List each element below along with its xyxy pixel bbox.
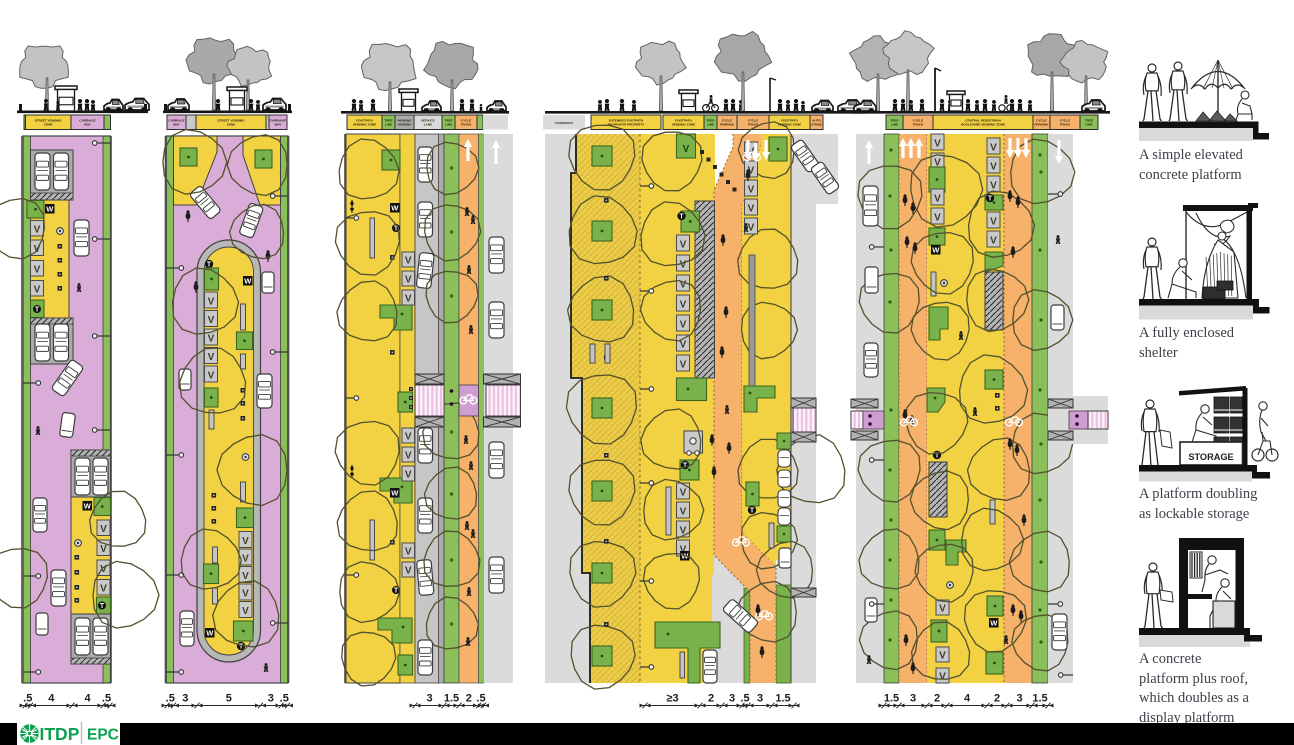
svg-text:1.5: 1.5 [884,693,899,705]
svg-text:V: V [990,217,997,228]
svg-text:3: 3 [910,693,916,705]
svg-text:ZONE: ZONE [44,123,53,127]
svg-text:V: V [208,352,215,363]
svg-text:V: V [242,554,249,565]
svg-text:W: W [932,246,940,255]
svg-text:V: V [934,194,941,205]
svg-text:PARKING: PARKING [720,123,735,127]
svg-text:W: W [46,205,54,214]
svg-text:V: V [680,507,687,518]
svg-text:V: V [939,672,946,683]
svg-text:WAY: WAY [173,123,181,127]
svg-text:5: 5 [226,693,232,705]
svg-text:W: W [244,277,252,286]
svg-text:BOULEVARD VENDING ZONE: BOULEVARD VENDING ZONE [961,123,1005,127]
svg-text:4: 4 [964,693,971,705]
svg-text:.5: .5 [23,693,32,705]
svg-text:V: V [748,223,755,234]
svg-text:2: 2 [708,693,714,705]
svg-text:V: V [680,320,687,331]
svg-text:V: V [990,236,997,247]
svg-text:T: T [988,196,993,203]
svg-text:1.5: 1.5 [775,693,790,705]
svg-text:V: V [680,300,687,311]
svg-text:T: T [100,603,105,610]
svg-text:V: V [405,256,412,267]
svg-text:V: V [934,213,941,224]
svg-text:V: V [990,143,997,154]
svg-text:TRACK: TRACK [913,123,925,127]
svg-text:V: V [405,294,412,305]
svg-text:V: V [405,547,412,558]
svg-text:.5: .5 [102,693,111,705]
svg-text:V: V [748,204,755,215]
svg-text:.5: .5 [740,693,749,705]
svg-text:T: T [35,307,40,314]
svg-text:COMMERCE: COMMERCE [555,121,573,125]
svg-text:V: V [680,488,687,499]
svg-text:.5: .5 [476,693,485,705]
svg-text:V: V [100,584,107,595]
svg-text:3: 3 [729,693,735,705]
svg-text:V: V [990,181,997,192]
svg-text:V: V [405,470,412,481]
svg-text:V: V [680,240,687,251]
svg-text:3: 3 [426,693,432,705]
svg-text:VENDING ZONE: VENDING ZONE [672,123,696,127]
svg-text:WAY: WAY [275,123,283,127]
svg-text:T: T [679,214,684,221]
svg-text:1.5: 1.5 [1032,693,1047,705]
svg-text:V: V [34,265,41,276]
svg-text:STORAGE: STORAGE [1188,452,1233,462]
svg-text:W: W [206,629,214,638]
svg-text:.5: .5 [280,693,289,705]
svg-text:V: V [680,340,687,351]
svg-text:PARKING: PARKING [1034,123,1049,127]
svg-text:ZONE: ZONE [227,123,236,127]
svg-text:V: V [405,432,412,443]
svg-text:V: V [939,651,946,662]
svg-text:2: 2 [466,693,472,705]
svg-text:≥3: ≥3 [666,693,678,705]
svg-text:W: W [391,204,399,213]
svg-text:LINE: LINE [385,123,392,127]
svg-text:V: V [405,566,412,577]
svg-text:LINE: LINE [445,123,452,127]
svg-text:LANE: LANE [424,123,432,127]
svg-text:4: 4 [84,693,91,705]
svg-text:V: V [242,589,249,600]
svg-text:V: V [748,185,755,196]
svg-text:V: V [208,371,215,382]
svg-text:TRACK: TRACK [1060,123,1072,127]
svg-text:V: V [100,524,107,535]
svg-text:EPC: EPC [87,727,119,744]
svg-text:2: 2 [994,693,1000,705]
svg-text:W: W [84,502,92,511]
svg-text:LINE: LINE [1085,123,1092,127]
svg-text:LINE: LINE [707,123,714,127]
svg-text:V: V [939,604,946,615]
svg-text:3: 3 [268,693,274,705]
svg-text:V: V [242,606,249,617]
svg-text:V: V [242,571,249,582]
svg-text:V: V [208,315,215,326]
svg-text:V: V [242,536,249,547]
svg-text:V: V [405,275,412,286]
svg-text:W: W [391,489,399,498]
svg-text:3: 3 [757,693,763,705]
svg-text:V: V [934,139,941,150]
svg-text:VENDING ZONE: VENDING ZONE [353,123,377,127]
svg-text:V: V [100,544,107,555]
svg-text:ITDP: ITDP [40,724,80,744]
svg-text:V: V [34,225,41,236]
svg-text:LINE: LINE [891,123,898,127]
svg-text:STAND: STAND [811,123,822,127]
svg-text:.5: .5 [166,693,175,705]
svg-text:V: V [683,144,690,155]
svg-text:3: 3 [1016,693,1022,705]
svg-text:V: V [990,162,997,173]
svg-text:V: V [208,334,215,345]
svg-text:V: V [34,285,41,296]
svg-text:VENDING: VENDING [397,123,412,127]
svg-text:T: T [750,508,755,515]
svg-text:V: V [405,451,412,462]
svg-text:4: 4 [48,693,55,705]
svg-text:3: 3 [182,693,188,705]
svg-text:WAY: WAY [84,123,92,127]
svg-text:1.5: 1.5 [444,693,459,705]
svg-text:TRACK: TRACK [461,123,473,127]
svg-text:V: V [208,297,215,308]
svg-text:2: 2 [934,693,940,705]
svg-text:W: W [990,619,998,628]
svg-text:V: V [680,260,687,271]
svg-text:V: V [680,360,687,371]
